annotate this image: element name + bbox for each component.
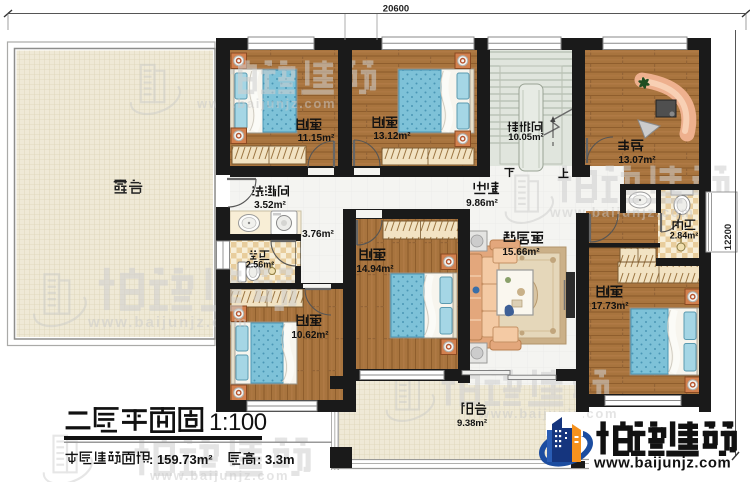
svg-text:10.05m²: 10.05m² bbox=[508, 132, 543, 143]
svg-text:15.66m²: 15.66m² bbox=[502, 247, 540, 258]
svg-text:: 3.3m: : 3.3m bbox=[257, 452, 295, 467]
svg-text:2.84m²: 2.84m² bbox=[670, 231, 699, 241]
svg-text:3.52m²: 3.52m² bbox=[254, 200, 286, 211]
svg-text:20600: 20600 bbox=[383, 4, 409, 15]
svg-text:www.baijunjz.com: www.baijunjz.com bbox=[149, 468, 289, 482]
svg-text:13.07m²: 13.07m² bbox=[618, 155, 656, 166]
svg-text:1:100: 1:100 bbox=[209, 409, 267, 436]
svg-text:9.86m²: 9.86m² bbox=[466, 198, 498, 209]
svg-text:11.15m²: 11.15m² bbox=[298, 133, 335, 144]
svg-text:17.73m²: 17.73m² bbox=[591, 301, 629, 312]
svg-text:www.baijunjz.com: www.baijunjz.com bbox=[593, 456, 731, 472]
svg-text:13.12m²: 13.12m² bbox=[373, 131, 411, 142]
svg-text:: 159.73m²: : 159.73m² bbox=[149, 452, 213, 467]
svg-text:9.38m²: 9.38m² bbox=[457, 418, 487, 429]
svg-text:12200: 12200 bbox=[723, 224, 734, 250]
svg-text:3.76m²: 3.76m² bbox=[302, 229, 334, 240]
svg-text:14.94m²: 14.94m² bbox=[356, 264, 394, 275]
svg-text:2.56m²: 2.56m² bbox=[246, 260, 275, 270]
svg-text:10.62m²: 10.62m² bbox=[291, 330, 329, 341]
